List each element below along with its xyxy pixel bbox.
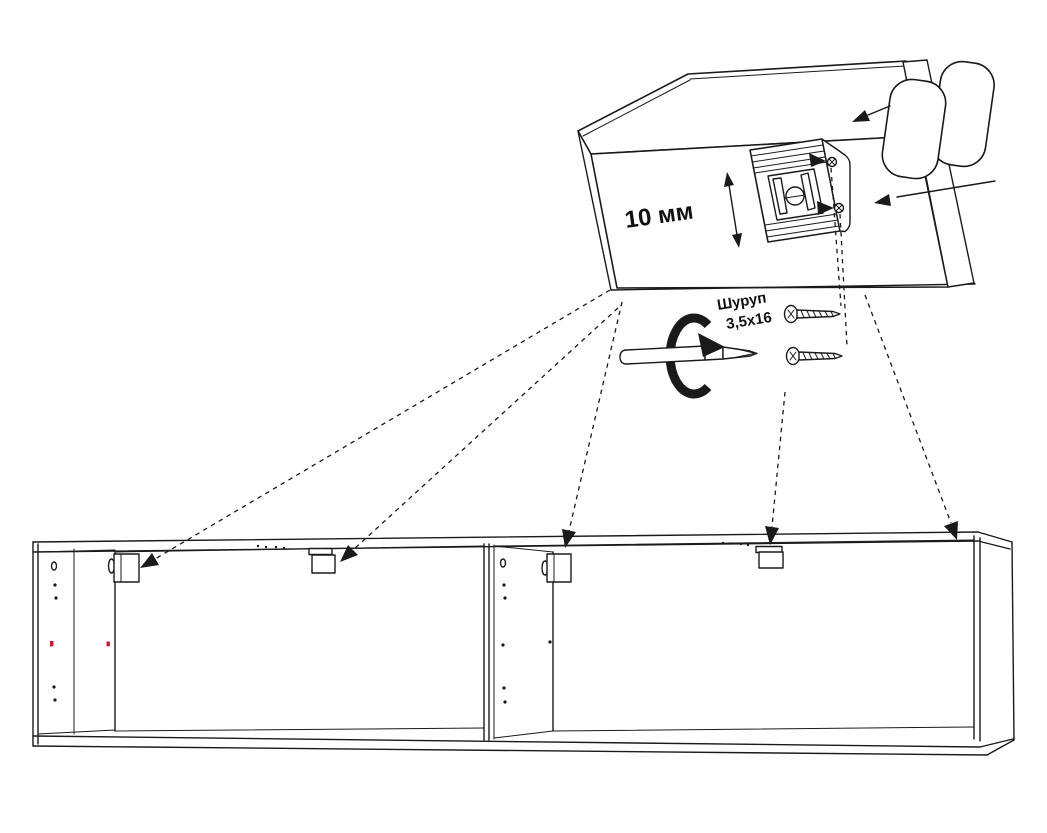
screw-label-line2: 3,5x16 — [725, 309, 773, 333]
screw-icon — [787, 348, 843, 365]
screw-icon — [785, 306, 841, 323]
flange-screw — [835, 204, 844, 213]
leader-line — [340, 308, 618, 562]
leader-line — [865, 295, 958, 540]
screw-size-label: Шуруп 3,5x16 — [716, 289, 773, 333]
leader-lines — [140, 290, 958, 568]
suspension-bracket — [750, 139, 850, 242]
red-hole-markers — [50, 641, 110, 646]
leader-line — [140, 290, 610, 568]
mounting-bracket-4 — [756, 547, 783, 569]
leader-arrowhead — [944, 521, 958, 540]
cabinet-overview — [33, 532, 1014, 755]
leader-arrowhead — [140, 553, 159, 568]
left-side-panel — [38, 549, 115, 734]
flange-screw — [828, 158, 837, 167]
shelf-holes — [52, 562, 58, 702]
leader-line — [562, 302, 622, 548]
detail-view: 10 мм — [578, 59, 997, 346]
assembly-diagram: 10 мм — [0, 0, 1047, 833]
mounting-bracket-1 — [109, 554, 140, 582]
screwdriver-icon — [620, 346, 757, 364]
cabinet-frame — [33, 532, 1014, 755]
mounting-bracket-2 — [309, 549, 335, 574]
leader-line — [765, 392, 785, 545]
shelf-holes — [501, 559, 552, 704]
tools: Шуруп 3,5x16 — [620, 289, 842, 394]
assembly-instruction-page: 10 мм — [0, 0, 1047, 833]
mounting-bracket-3 — [542, 554, 571, 582]
